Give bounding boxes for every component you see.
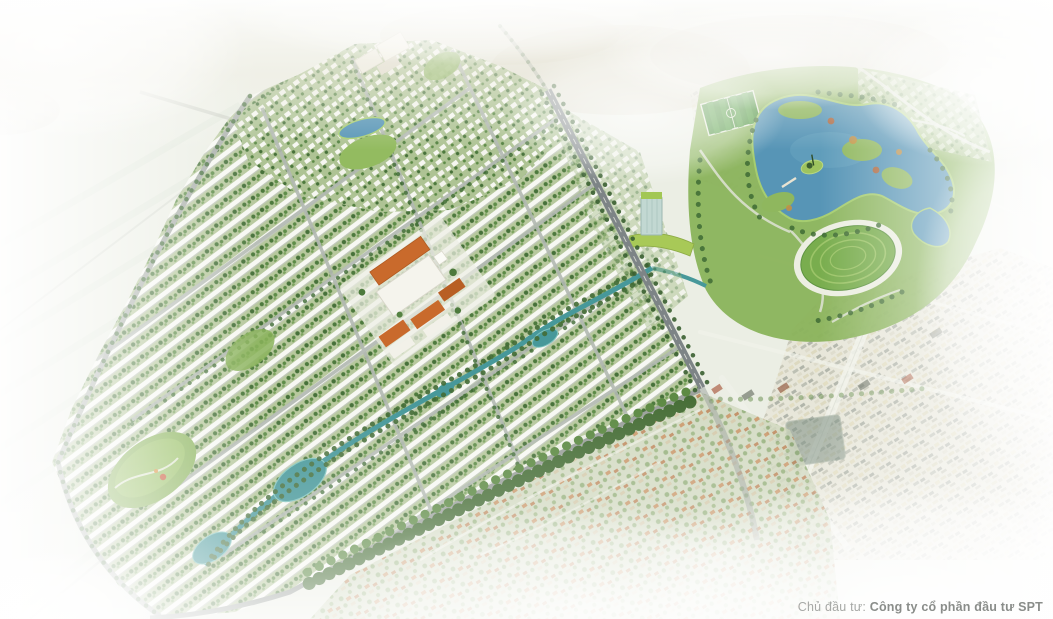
masterplan-artwork (0, 0, 1053, 619)
tower-green-roof (641, 192, 662, 199)
credit-caption: Chủ đầu tư: Công ty cổ phần đầu tư SPT (798, 600, 1043, 614)
credit-company: Công ty cổ phần đầu tư SPT (870, 600, 1043, 614)
masterplan-image: Chủ đầu tư: Công ty cổ phần đầu tư SPT (0, 0, 1053, 619)
credit-prefix: Chủ đầu tư: (798, 600, 866, 614)
